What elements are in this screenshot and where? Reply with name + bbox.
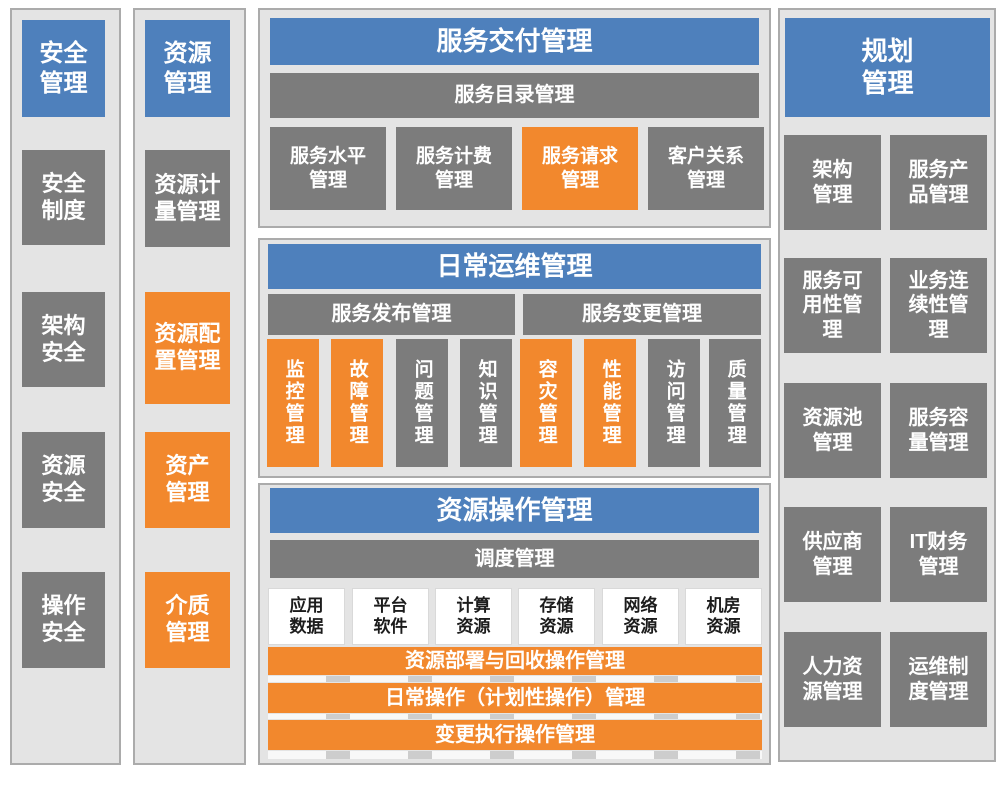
service-product-mgmt-box: 服务产 品管理: [890, 135, 987, 230]
hr-mgmt-box: 人力资 源管理: [784, 632, 881, 727]
architecture-security-box: 架构 安全: [22, 292, 105, 387]
app-data-box: 应用 数据: [268, 588, 345, 645]
deploy-recycle-ops-bar: 资源部署与回收操作管理: [268, 647, 762, 675]
service-delivery-panel: 服务交付管理 服务目录管理 服务水平 管理 服务计费 管理 服务请求 管理 客户…: [258, 8, 771, 228]
resource-security-box: 资源 安全: [22, 432, 105, 528]
planning-management-header: 规划 管理: [785, 18, 990, 117]
itsm-framework-diagram: 安全 管理 安全 制度 架构 安全 资源 安全 操作 安全 资源 管理 资源计 …: [0, 0, 1000, 785]
customer-relationship-box: 客户关系 管理: [648, 127, 764, 210]
scheduling-bar: 调度管理: [270, 540, 759, 578]
operation-security-box: 操作 安全: [22, 572, 105, 668]
media-management-box: 介质 管理: [145, 572, 230, 668]
planning-column-panel: 规划 管理 架构 管理 服务产 品管理 服务可 用性管 理 业务连 续性管 理 …: [778, 8, 996, 762]
network-resource-box: 网络 资源: [602, 588, 679, 645]
security-policy-box: 安全 制度: [22, 150, 105, 245]
resource-column-panel: 资源 管理 资源计 量管理 资源配 置管理 资产 管理 介质 管理: [133, 8, 246, 765]
service-delivery-header: 服务交付管理: [270, 18, 759, 65]
disaster-recovery-mgmt-box: 容灾管理: [520, 339, 572, 467]
storage-resource-box: 存储 资源: [518, 588, 595, 645]
resource-metering-box: 资源计 量管理: [145, 150, 230, 247]
datacenter-resource-box: 机房 资源: [685, 588, 762, 645]
service-capacity-mgmt-box: 服务容 量管理: [890, 383, 987, 478]
knowledge-mgmt-box: 知识管理: [460, 339, 512, 467]
divider-dashes: [268, 714, 762, 719]
security-management-header: 安全 管理: [22, 20, 105, 117]
resource-management-header: 资源 管理: [145, 20, 230, 117]
architecture-mgmt-box: 架构 管理: [784, 135, 881, 230]
service-availability-mgmt-box: 服务可 用性管 理: [784, 258, 881, 353]
supplier-mgmt-box: 供应商 管理: [784, 507, 881, 602]
resource-config-box: 资源配 置管理: [145, 292, 230, 404]
service-release-bar: 服务发布管理: [268, 294, 515, 335]
daily-ops-panel: 日常运维管理 服务发布管理 服务变更管理 监控管理 故障管理 问题管理 知识管理…: [258, 238, 771, 478]
business-continuity-mgmt-box: 业务连 续性管 理: [890, 258, 987, 353]
service-change-bar: 服务变更管理: [523, 294, 761, 335]
daily-ops-header: 日常运维管理: [268, 244, 761, 289]
resource-ops-header: 资源操作管理: [270, 488, 759, 533]
routine-ops-bar: 日常操作（计划性操作）管理: [268, 683, 762, 713]
monitoring-mgmt-box: 监控管理: [267, 339, 319, 467]
performance-mgmt-box: 性能管理: [584, 339, 636, 467]
change-execution-ops-bar: 变更执行操作管理: [268, 720, 762, 750]
platform-software-box: 平台 软件: [352, 588, 429, 645]
security-column-panel: 安全 管理 安全 制度 架构 安全 资源 安全 操作 安全: [10, 8, 121, 765]
it-finance-mgmt-box: IT财务 管理: [890, 507, 987, 602]
service-catalog-bar: 服务目录管理: [270, 73, 759, 118]
problem-mgmt-box: 问题管理: [396, 339, 448, 467]
asset-management-box: 资产 管理: [145, 432, 230, 528]
compute-resource-box: 计算 资源: [435, 588, 512, 645]
access-mgmt-box: 访问管理: [648, 339, 700, 467]
divider-dashes: [268, 676, 762, 682]
fault-mgmt-box: 故障管理: [331, 339, 383, 467]
quality-mgmt-box: 质量管理: [709, 339, 761, 467]
resource-ops-panel: 资源操作管理 调度管理 应用 数据 平台 软件 计算 资源 存储 资源 网络 资…: [258, 483, 771, 765]
divider-dashes: [268, 751, 762, 759]
service-request-box: 服务请求 管理: [522, 127, 638, 210]
service-billing-box: 服务计费 管理: [396, 127, 512, 210]
ops-policy-mgmt-box: 运维制 度管理: [890, 632, 987, 727]
resource-pool-mgmt-box: 资源池 管理: [784, 383, 881, 478]
service-level-box: 服务水平 管理: [270, 127, 386, 210]
